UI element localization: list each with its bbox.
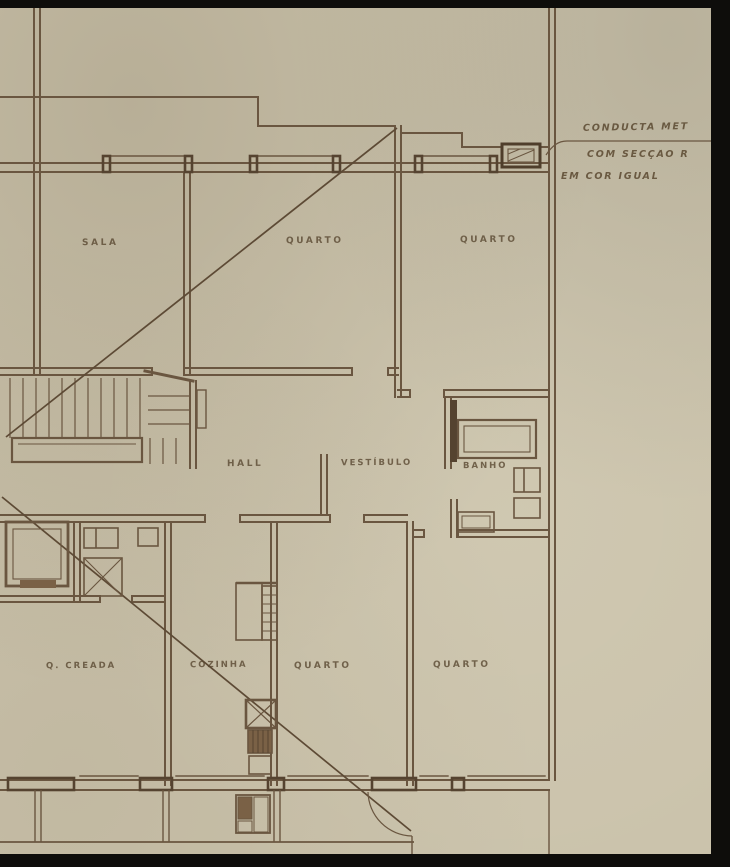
room-label-creada: Q. CREADA bbox=[46, 661, 116, 671]
room-label-hall: HALL bbox=[227, 459, 263, 469]
scanned-floor-plan: SALA QUARTO QUARTO HALL VESTÍBULO BANHO … bbox=[0, 0, 730, 867]
scan-frame-right bbox=[711, 0, 730, 867]
room-label-quarto-top-right: QUARTO bbox=[460, 235, 518, 245]
diagonal-lines bbox=[2, 128, 411, 831]
room-label-quarto-bottom-left: QUARTO bbox=[294, 661, 352, 671]
scan-frame-top bbox=[0, 0, 730, 8]
room-label-sala: SALA bbox=[82, 238, 119, 248]
room-label-quarto-bottom-right: QUARTO bbox=[433, 660, 491, 670]
parapet-outline bbox=[0, 97, 549, 147]
scan-frame-bottom bbox=[0, 854, 730, 867]
walls bbox=[0, 8, 555, 790]
annotation-line-2: COM SECÇÃO R bbox=[587, 149, 689, 160]
room-label-cozinha: COZINHA bbox=[190, 660, 248, 670]
room-label-vestibulo: VESTÍBULO bbox=[341, 458, 412, 468]
staircase bbox=[10, 378, 206, 464]
service-area bbox=[6, 522, 158, 596]
balcony bbox=[0, 790, 549, 858]
wall-piers bbox=[8, 156, 497, 790]
annotation-line-3: EM COR IGUAL bbox=[561, 171, 660, 182]
room-label-quarto-top-left: QUARTO bbox=[286, 236, 344, 246]
room-label-banho: BANHO bbox=[463, 461, 508, 471]
annotation-line-1: CONDUCTA MET bbox=[583, 121, 689, 134]
